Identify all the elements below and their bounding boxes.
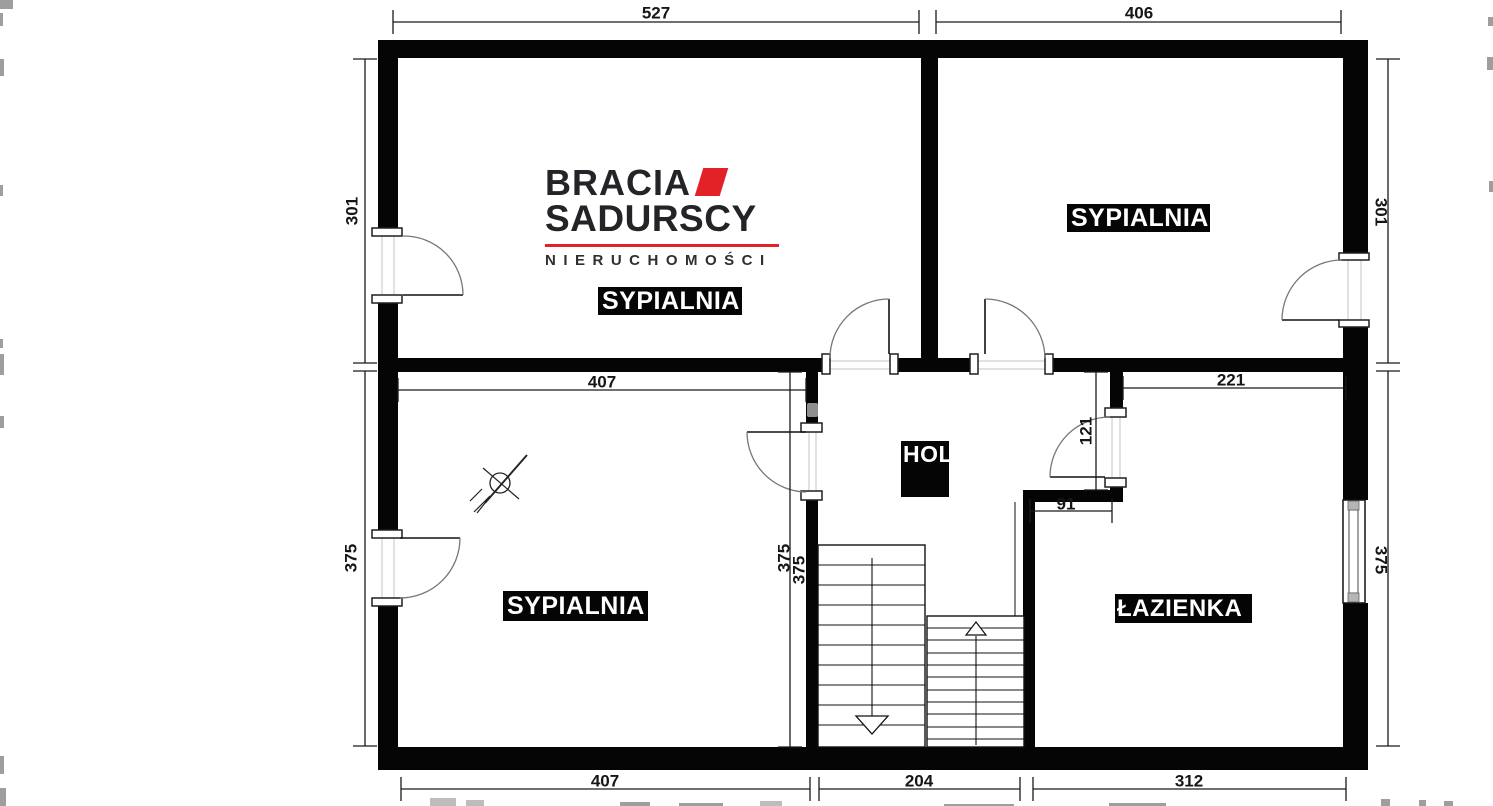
edge-artifact [0,339,3,348]
edge-artifact [1444,801,1453,806]
dim-right-lower: 375 [1373,546,1390,574]
door-swing-arcs [400,236,1342,598]
floor-plan-drawing [0,0,1493,806]
wall-right [1343,327,1368,500]
edge-artifact [0,185,3,196]
door-leaves [400,295,1339,538]
brand-mark-icon [695,168,729,196]
wall-left [378,40,398,228]
brand-rule [545,244,779,247]
wall-hall-divider [806,500,818,747]
wall-top-divider [921,58,938,358]
dim-inner-hall-opening: 121 [1078,417,1095,445]
wall-left [378,606,398,756]
wall-middle [898,358,970,372]
edge-artifact [760,801,782,806]
edge-artifact [0,13,3,26]
edge-artifact [1419,800,1426,806]
room-label-hall: HOL [901,441,949,497]
brand-word-nieruchomosci: NIERUCHOMOŚCI [545,252,795,269]
opening-face-lines [382,236,1361,598]
watermark-smudge [807,403,818,417]
dim-left-upper: 301 [344,197,361,225]
dim-top-right: 406 [1125,5,1153,22]
wall-middle [1053,358,1343,372]
staircase [818,502,1024,747]
dim-right-upper: 301 [1373,198,1390,226]
room-label-bedroom-top-right: SYPIALNIA [1067,204,1210,232]
edge-artifact [1381,799,1390,806]
doors [400,236,1342,598]
dim-left-lower: 375 [343,544,360,572]
dim-inner-bath-nook: 91 [1057,496,1076,513]
edge-artifact [1489,181,1493,192]
edge-artifact [0,59,4,76]
wall-hall-stub [1110,372,1123,408]
edge-artifact [466,800,484,806]
room-label-bedroom-top-left: SYPIALNIA [598,287,742,315]
dim-inner-bedroom-width: 407 [588,374,616,391]
edge-artifact [620,802,650,806]
brand-line-1: BRACIA [545,166,795,200]
brand-logo: BRACIA SADURSCY NIERUCHOMOŚCI [545,166,795,269]
dim-bottom-right: 312 [1175,773,1203,790]
dim-inner-hall-height: 375 [791,556,808,584]
wall-bottom [378,747,1368,770]
dim-bottom-center: 204 [905,773,933,790]
edge-artifact [1487,57,1493,70]
window [1343,500,1365,603]
wall-right [1343,603,1368,756]
wall-bath-vertical [1023,502,1035,747]
edge-artifact [0,0,13,9]
dim-top-left: 527 [642,5,670,22]
edge-artifact [1488,17,1493,26]
wall-right [1343,40,1368,253]
edge-artifact [430,798,456,806]
edge-artifact [0,416,4,428]
dim-inner-bathroom-width: 221 [1217,372,1245,389]
wall-top [378,40,1368,58]
edge-artifact [0,354,4,375]
brand-word-bracia: BRACIA [545,166,691,200]
dim-bottom-left: 407 [591,773,619,790]
wall-left [378,303,398,530]
brand-word-sadurscy: SADURSCY [545,200,795,238]
room-label-bedroom-bottom-left: SYPIALNIA [503,591,648,621]
room-label-bathroom: ŁAZIENKA [1115,594,1252,623]
wall-middle [378,358,822,372]
edge-artifact [0,756,4,774]
edge-artifact [0,788,6,806]
floor-plan-page: BRACIA SADURSCY NIERUCHOMOŚCI SYPIALNIA … [0,0,1493,806]
ceiling-light-icon [470,455,527,513]
